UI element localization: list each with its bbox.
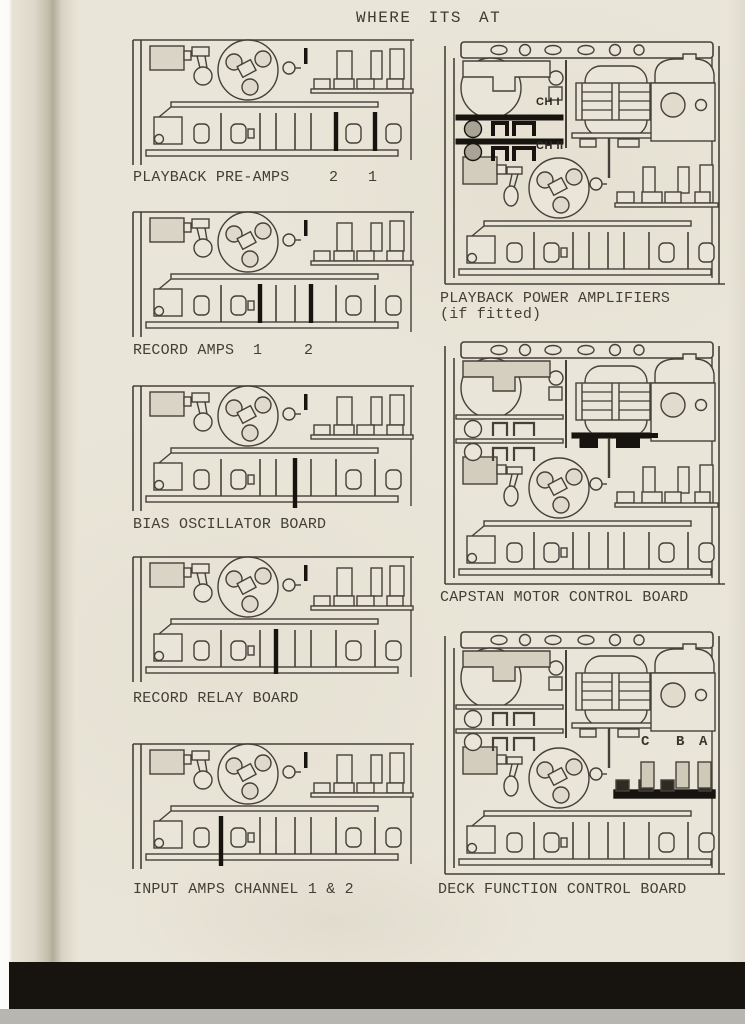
slot-marker: 2 xyxy=(304,342,313,359)
figure-caption: DECK FUNCTION CONTROL BOARD xyxy=(438,881,686,898)
deck-diagram xyxy=(128,384,416,512)
figure-record-relay: RECORD RELAY BOARD xyxy=(128,555,416,715)
board-label-c: C xyxy=(641,734,649,750)
figure-capstan-motor-control: CAPSTAN MOTOR CONTROL BOARD xyxy=(433,338,728,618)
deck-diagram xyxy=(128,742,416,870)
highlighted-function-boards xyxy=(614,762,715,798)
deck-diagram xyxy=(433,338,728,586)
deck-diagram xyxy=(128,38,416,166)
figure-caption: RECORD AMPS xyxy=(133,342,234,359)
figure-bias-oscillator: BIAS OSCILLATOR BOARD xyxy=(128,384,416,544)
deck-diagram xyxy=(128,555,416,683)
deck-diagram xyxy=(433,38,728,286)
figure-caption: PLAYBACK POWER AMPLIFIERS xyxy=(440,290,670,307)
scan-footer-edge xyxy=(0,1009,745,1024)
deck-diagram xyxy=(433,628,728,876)
highlighted-board-slot xyxy=(309,284,313,323)
figure-caption-line2: (if fitted) xyxy=(440,306,541,323)
figure-caption: PLAYBACK PRE-AMPS xyxy=(133,169,289,186)
channel-1-label: CH I xyxy=(536,96,560,108)
deck-diagram xyxy=(128,210,416,338)
figure-caption: CAPSTAN MOTOR CONTROL BOARD xyxy=(440,589,688,606)
figure-deck-function-control: C B A DECK FUNCTION CONTROL BOARD xyxy=(433,628,728,908)
highlighted-board-slot xyxy=(219,816,223,866)
channel-2-label: CH II xyxy=(536,140,564,152)
figure-caption: RECORD RELAY BOARD xyxy=(133,690,299,707)
board-label-b: B xyxy=(676,734,684,750)
highlighted-board-slot xyxy=(258,284,262,323)
slot-marker: 1 xyxy=(368,169,377,186)
figure-input-amps: INPUT AMPS CHANNEL 1 & 2 xyxy=(128,742,416,902)
figure-caption: INPUT AMPS CHANNEL 1 & 2 xyxy=(133,881,354,898)
power-amp-heatsinks xyxy=(456,115,563,161)
slot-marker: 2 xyxy=(329,169,338,186)
highlighted-board-slot xyxy=(274,629,278,674)
page-title: WHERE ITS AT xyxy=(356,9,501,27)
scan-footer-bar xyxy=(9,962,745,1009)
figure-record-amps: RECORD AMPS 1 2 xyxy=(128,210,416,370)
board-label-a: A xyxy=(699,734,707,750)
highlighted-board-slot xyxy=(373,112,377,151)
figure-playback-preamps: PLAYBACK PRE-AMPS 2 1 xyxy=(128,38,416,198)
highlighted-capstan-board xyxy=(572,433,658,448)
slot-marker: 1 xyxy=(253,342,262,359)
book-spine-shadow xyxy=(0,0,78,1024)
figure-caption: BIAS OSCILLATOR BOARD xyxy=(133,516,326,533)
highlighted-board-slot xyxy=(293,458,297,508)
manual-page: WHERE ITS AT PLAYBACK PRE-AMPS 2 1 RECOR… xyxy=(0,0,745,1024)
figure-playback-power-amps: CH I CH II PLAYBACK POWER AMPLIFIERS (if… xyxy=(433,38,728,328)
highlighted-board-slot xyxy=(334,112,338,151)
